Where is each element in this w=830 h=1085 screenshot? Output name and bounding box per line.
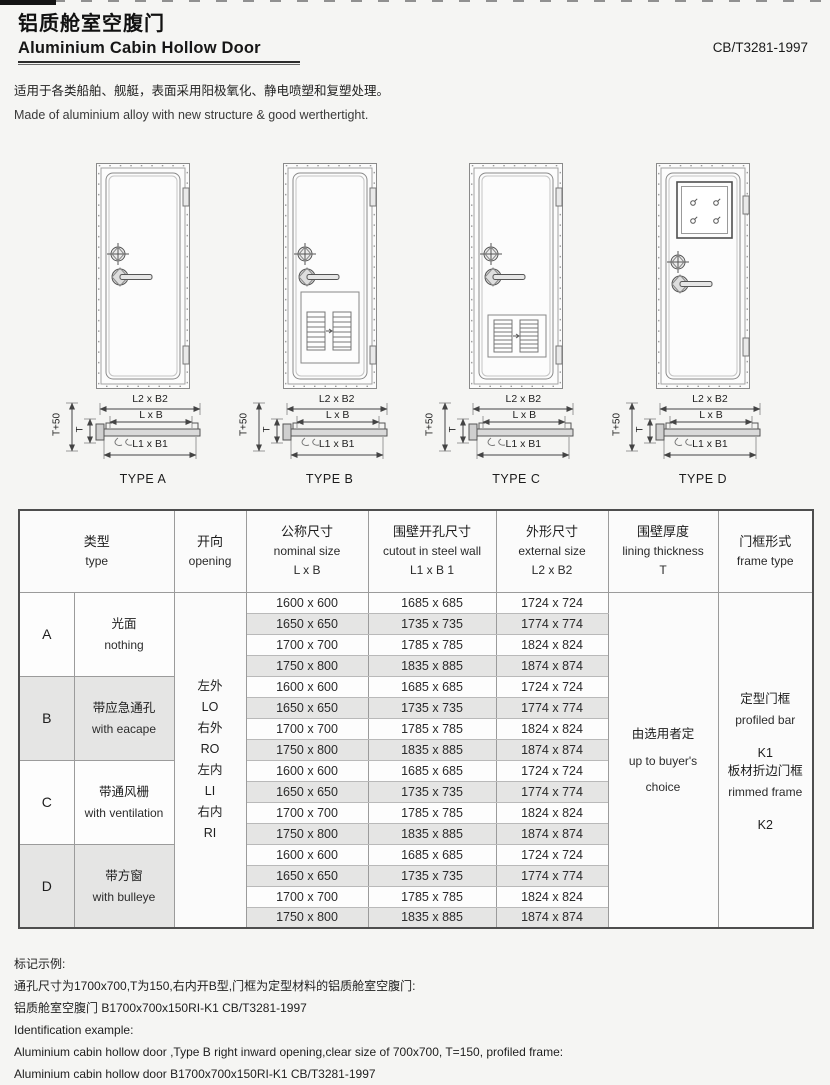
cross-section-a: L2 x B2 L x B L1 x B1 T+50 T [54,393,204,471]
opening-li: 左内LI [175,760,246,802]
nominal-size-cell: 1750 x 800 [246,907,368,928]
nominal-size-cell: 1700 x 700 [246,886,368,907]
nominal-size-cell: 1650 x 650 [246,697,368,718]
identification-example-section: 标记示例: 通孔尺寸为1700x700,T为150,右内开B型,门框为定型材料的… [14,953,830,1085]
door-ventilation-louver-icon [468,162,564,390]
external-size-cell: 1874 x 874 [496,823,608,844]
cutout-size-cell: 1785 x 785 [368,802,496,823]
ventilation-louver-panel [488,315,546,357]
title-underline [18,61,300,65]
type-desc-cell-c: 带通风栅 with ventilation [74,760,174,844]
header-nominal-sym: L x B [247,561,368,580]
header-cutout-en: cutout in steel wall [369,542,496,561]
dim-label-cutout: L1 x B1 [660,438,760,450]
dim-label-outer: L2 x B2 [473,393,573,405]
type-b-label: TYPE B [306,472,353,486]
type-desc-en: with bulleye [75,887,174,907]
cutout-size-cell: 1735 x 735 [368,697,496,718]
dim-label-nominal: L x B [293,409,383,421]
cutout-size-cell: 1835 x 885 [368,907,496,928]
cutout-size-cell: 1735 x 735 [368,781,496,802]
dim-label-t50: T+50 [52,408,63,442]
type-desc-cell-d: 带方窗 with bulleye [74,844,174,928]
header-type-cn: 类型 [20,532,174,552]
cutout-size-cell: 1685 x 685 [368,844,496,865]
dim-label-t: T [634,423,645,437]
intro-text-cn: 适用于各类船舶、舰艇，表面采用阳极氧化、静电喷塑和复塑处理。 [14,80,830,99]
external-size-cell: 1824 x 824 [496,886,608,907]
type-desc-en: with eacape [75,719,174,739]
cutout-size-cell: 1735 x 735 [368,613,496,634]
cutout-size-cell: 1785 x 785 [368,718,496,739]
header-frame-en: frame type [719,552,813,571]
type-a-label: TYPE A [120,472,167,486]
opening-lo: 左外LO [175,676,246,718]
external-size-cell: 1774 x 774 [496,781,608,802]
escape-louver-panel [301,292,359,363]
header-type: 类型 type [19,510,174,592]
type-letter-cell-d: D [19,844,74,928]
page-header: 铝质舱室空腹门 Aluminium Cabin Hollow Door CB/T… [0,0,830,122]
header-external-size: 外形尺寸 external size L2 x B2 [496,510,608,592]
lining-thickness-cell: 由选用者定 up to buyer's choice [608,592,718,928]
opening-cell: 左外LO 右外RO 左内LI 右内RI [174,592,246,928]
external-size-cell: 1724 x 724 [496,592,608,613]
nominal-size-cell: 1700 x 700 [246,634,368,655]
external-size-cell: 1774 x 774 [496,613,608,634]
nominal-size-cell: 1750 x 800 [246,823,368,844]
cross-section-d: L2 x B2 L x B L1 x B1 T+50 T [614,393,764,471]
door-diagrams-section: L2 x B2 L x B L1 x B1 T+50 T TYPE A [0,162,830,486]
nominal-size-cell: 1700 x 700 [246,802,368,823]
cross-section-b: L2 x B2 L x B L1 x B1 T+50 T [241,393,391,471]
square-window [677,182,732,238]
door-plain-icon [95,162,191,390]
frame-k1: 定型门框 profiled bar K1 [719,688,813,760]
cutout-size-cell: 1835 x 885 [368,739,496,760]
diagram-type-d: L2 x B2 L x B L1 x B1 T+50 T TYPE D [612,162,794,486]
table-row: A 光面 nothing 左外LO 右外RO 左内LI 右内RI 1600 x … [19,592,813,613]
lining-cn: 由选用者定 [609,723,718,745]
dim-label-t50: T+50 [425,408,436,442]
header-nominal-cn: 公称尺寸 [247,522,368,542]
example-line2-en: Aluminium cabin hollow door B1700x700x15… [14,1063,830,1085]
cutout-size-cell: 1685 x 685 [368,760,496,781]
intro-text-en: Made of aluminium alloy with new structu… [14,108,830,122]
dim-label-cutout: L1 x B1 [287,438,387,450]
type-c-label: TYPE C [492,472,540,486]
nominal-size-cell: 1600 x 600 [246,676,368,697]
cutout-size-cell: 1835 x 885 [368,655,496,676]
dim-label-t: T [261,423,272,437]
external-size-cell: 1724 x 724 [496,844,608,865]
external-size-cell: 1824 x 824 [496,718,608,739]
header-external-en: external size [497,542,608,561]
header-frame-type: 门框形式 frame type [718,510,813,592]
header-type-en: type [20,552,174,571]
frame-k2: 板材折边门框 rimmed frame K2 [719,760,813,832]
type-desc-cn: 带通风栅 [75,781,174,803]
dim-label-outer: L2 x B2 [287,393,387,405]
type-desc-en: with ventilation [75,803,174,823]
header-external-sym: L2 x B2 [497,561,608,580]
nominal-size-cell: 1650 x 650 [246,865,368,886]
header-cutout-size: 围壁开孔尺寸 cutout in steel wall L1 x B 1 [368,510,496,592]
dim-label-nominal: L x B [666,409,756,421]
page-title-en: Aluminium Cabin Hollow Door [18,39,830,58]
dim-label-nominal: L x B [106,409,196,421]
type-desc-cn: 带方窗 [75,865,174,887]
example-line1-en: Aluminium cabin hollow door ,Type B righ… [14,1041,830,1063]
header-cutout-sym: L1 x B 1 [369,561,496,580]
standard-code: CB/T3281-1997 [713,40,808,55]
frame-type-cell: 定型门框 profiled bar K1 板材折边门框 rimmed frame… [718,592,813,928]
door-square-window-icon [655,162,751,390]
type-desc-cell-a: 光面 nothing [74,592,174,676]
external-size-cell: 1824 x 824 [496,802,608,823]
diagram-type-c: L2 x B2 L x B L1 x B1 T+50 T TYPE C [425,162,607,486]
cutout-size-cell: 1685 x 685 [368,676,496,697]
dim-label-t50: T+50 [611,408,622,442]
nominal-size-cell: 1750 x 800 [246,739,368,760]
header-frame-cn: 门框形式 [719,532,813,552]
external-size-cell: 1774 x 774 [496,865,608,886]
dim-label-outer: L2 x B2 [100,393,200,405]
header-lining-cn: 围壁厚度 [609,522,718,542]
dim-label-t: T [448,423,459,437]
type-letter-cell-a: A [19,592,74,676]
nominal-size-cell: 1600 x 600 [246,592,368,613]
dim-label-outer: L2 x B2 [660,393,760,405]
header-nominal-size: 公称尺寸 nominal size L x B [246,510,368,592]
example-title-cn: 标记示例: [14,953,830,975]
type-desc-cn: 带应急通孔 [75,697,174,719]
table-header-row: 类型 type 开向 opening 公称尺寸 nominal size L x… [19,510,813,592]
header-cutout-cn: 围壁开孔尺寸 [369,522,496,542]
nominal-size-cell: 1650 x 650 [246,613,368,634]
cutout-size-cell: 1685 x 685 [368,592,496,613]
header-lining-thickness: 围壁厚度 lining thickness T [608,510,718,592]
nominal-size-cell: 1600 x 600 [246,844,368,865]
dim-label-t: T [75,423,86,437]
opening-ro: 右外RO [175,718,246,760]
header-nominal-en: nominal size [247,542,368,561]
external-size-cell: 1824 x 824 [496,634,608,655]
lining-en2: choice [609,777,718,797]
header-lining-en: lining thickness [609,542,718,561]
type-desc-en: nothing [75,635,174,655]
external-size-cell: 1724 x 724 [496,760,608,781]
opening-ri: 右内RI [175,802,246,844]
type-d-label: TYPE D [679,472,727,486]
example-line1-cn: 通孔尺寸为1700x700,T为150,右内开B型,门框为定型材料的铝质舱室空腹… [14,975,830,997]
header-opening-cn: 开向 [175,532,246,552]
example-title-en: Identification example: [14,1019,830,1041]
header-external-cn: 外形尺寸 [497,522,608,542]
header-lining-sym: T [609,561,718,580]
nominal-size-cell: 1750 x 800 [246,655,368,676]
cutout-size-cell: 1835 x 885 [368,823,496,844]
nominal-size-cell: 1600 x 600 [246,760,368,781]
dim-label-t50: T+50 [238,408,249,442]
example-line2-cn: 铝质舱室空腹门 B1700x700x150RI-K1 CB/T3281-1997 [14,997,830,1019]
cross-section-c: L2 x B2 L x B L1 x B1 T+50 T [427,393,577,471]
cutout-size-cell: 1785 x 785 [368,886,496,907]
specification-table: 类型 type 开向 opening 公称尺寸 nominal size L x… [18,509,814,929]
type-letter-cell-c: C [19,760,74,844]
type-desc-cn: 光面 [75,613,174,635]
diagram-type-b: L2 x B2 L x B L1 x B1 T+50 T TYPE B [239,162,421,486]
page-title-cn: 铝质舱室空腹门 [18,7,830,36]
external-size-cell: 1874 x 874 [496,907,608,928]
dim-label-cutout: L1 x B1 [473,438,573,450]
header-opening: 开向 opening [174,510,246,592]
type-letter-cell-b: B [19,676,74,760]
external-size-cell: 1724 x 724 [496,676,608,697]
nominal-size-cell: 1700 x 700 [246,718,368,739]
external-size-cell: 1774 x 774 [496,697,608,718]
diagram-type-a: L2 x B2 L x B L1 x B1 T+50 T TYPE A [52,162,234,486]
external-size-cell: 1874 x 874 [496,739,608,760]
type-desc-cell-b: 带应急通孔 with eacape [74,676,174,760]
door-escape-louver-icon [282,162,378,390]
header-opening-en: opening [175,552,246,571]
cutout-size-cell: 1735 x 735 [368,865,496,886]
nominal-size-cell: 1650 x 650 [246,781,368,802]
external-size-cell: 1874 x 874 [496,655,608,676]
dim-label-nominal: L x B [479,409,569,421]
cutout-size-cell: 1785 x 785 [368,634,496,655]
lining-en1: up to buyer's [609,751,718,771]
dim-label-cutout: L1 x B1 [100,438,200,450]
